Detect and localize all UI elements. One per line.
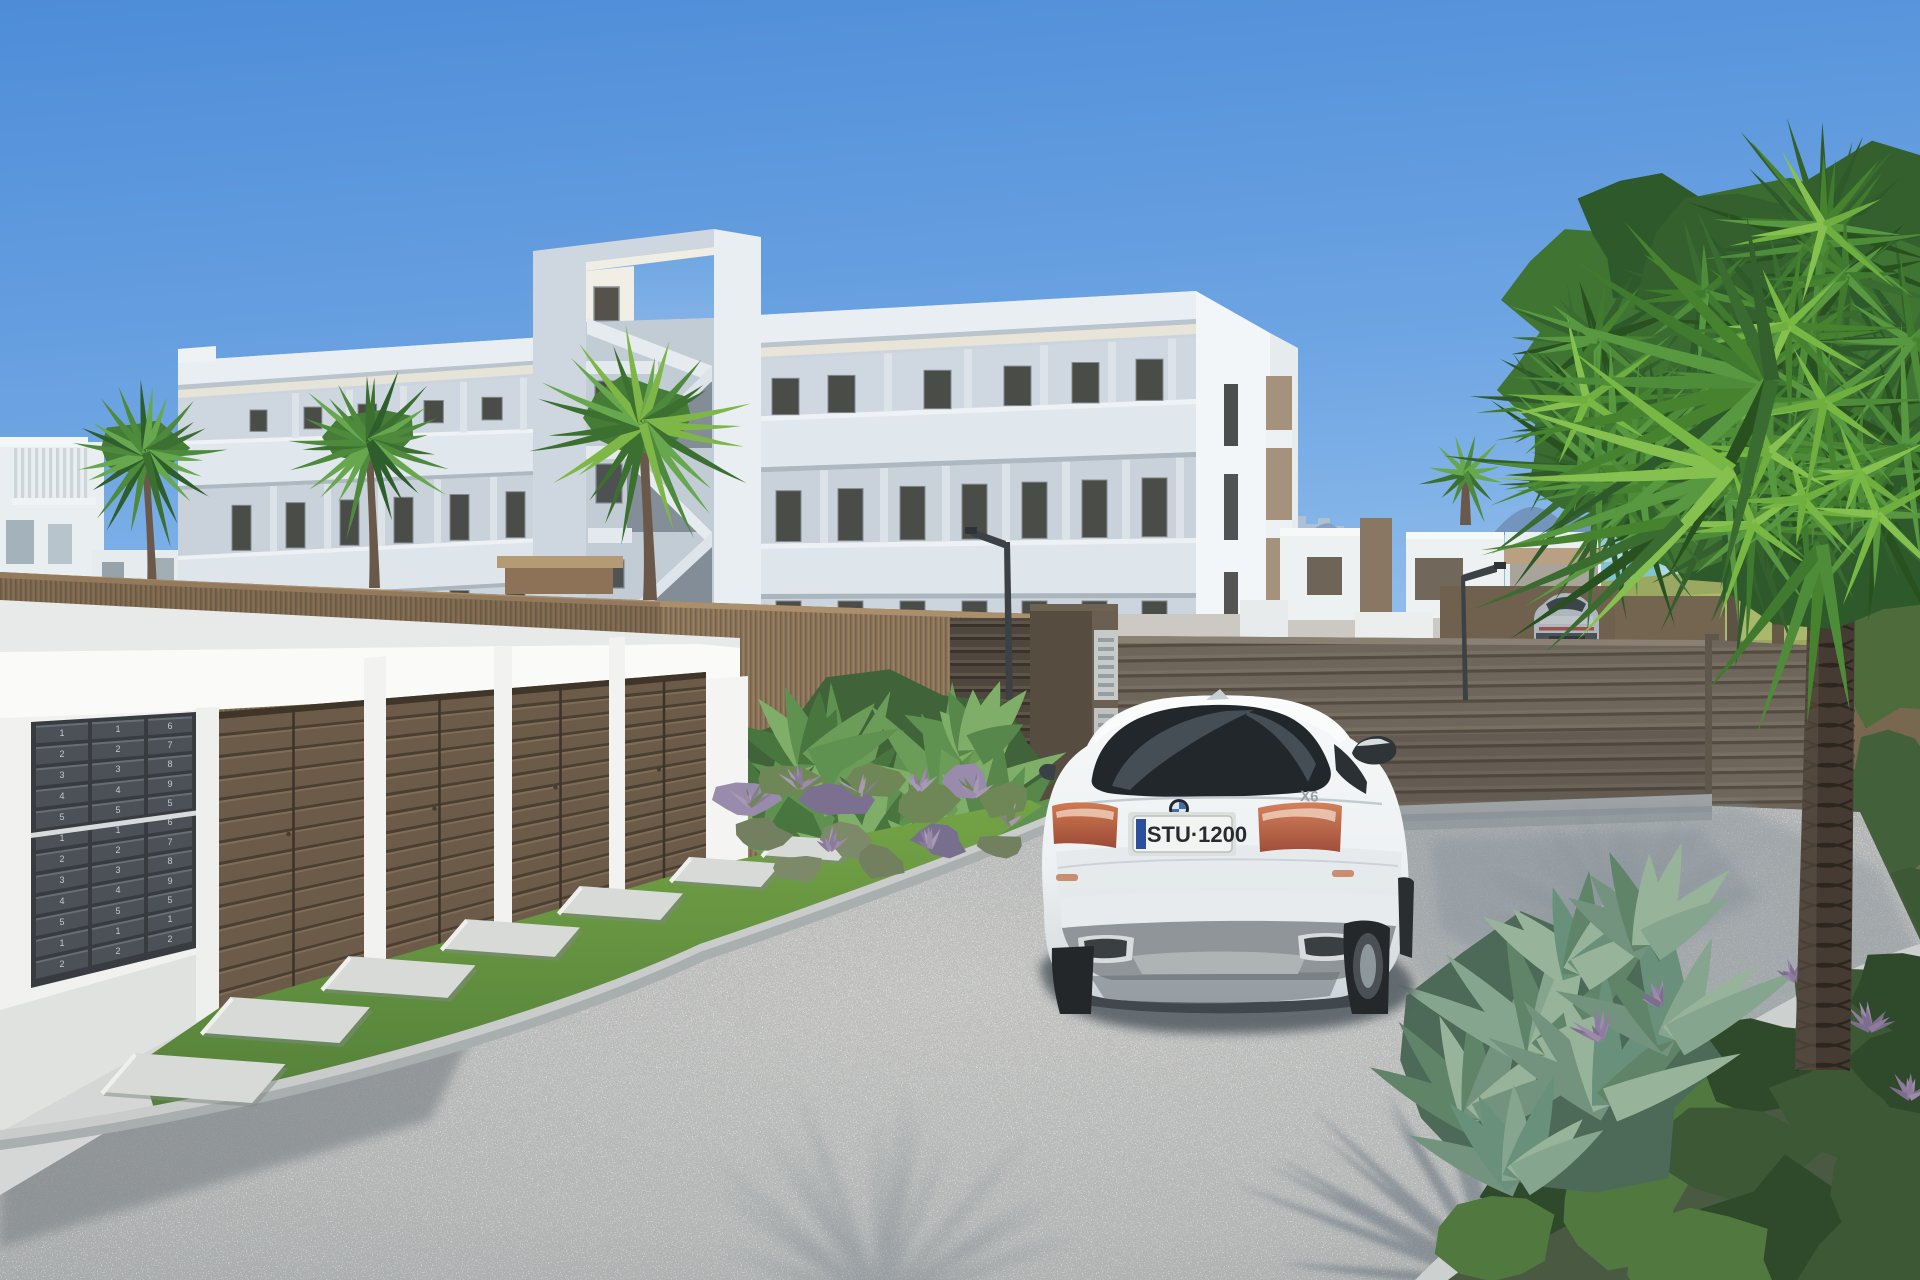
- svg-text:1: 1: [115, 926, 120, 936]
- svg-text:4: 4: [59, 896, 64, 906]
- svg-text:2: 2: [115, 845, 120, 855]
- svg-text:9: 9: [167, 779, 172, 789]
- svg-text:2: 2: [59, 854, 64, 864]
- svg-text:7: 7: [167, 740, 172, 750]
- svg-text:1: 1: [115, 724, 120, 734]
- svg-text:5: 5: [59, 917, 64, 927]
- svg-text:4: 4: [59, 791, 64, 801]
- svg-text:2: 2: [115, 744, 120, 754]
- svg-text:2: 2: [167, 934, 172, 944]
- svg-text:1: 1: [59, 728, 64, 738]
- svg-text:1: 1: [115, 825, 120, 835]
- svg-text:2: 2: [59, 959, 64, 969]
- svg-text:5: 5: [59, 812, 64, 822]
- svg-text:3: 3: [115, 865, 120, 875]
- svg-text:STU·1200: STU·1200: [1147, 822, 1247, 847]
- svg-text:3: 3: [115, 764, 120, 774]
- svg-text:X6: X6: [1300, 788, 1319, 806]
- svg-text:2: 2: [59, 749, 64, 759]
- svg-text:1: 1: [167, 914, 172, 924]
- svg-text:6: 6: [167, 721, 172, 731]
- svg-text:8: 8: [167, 856, 172, 866]
- svg-text:5: 5: [115, 906, 120, 916]
- svg-text:2: 2: [115, 946, 120, 956]
- svg-text:1: 1: [59, 833, 64, 843]
- svg-text:4: 4: [115, 885, 120, 895]
- svg-text:8: 8: [167, 759, 172, 769]
- svg-text:5: 5: [167, 895, 172, 905]
- svg-text:9: 9: [167, 876, 172, 886]
- svg-text:1: 1: [59, 938, 64, 948]
- svg-text:5: 5: [115, 805, 120, 815]
- svg-text:5: 5: [167, 798, 172, 808]
- svg-text:7: 7: [167, 837, 172, 847]
- svg-text:3: 3: [59, 875, 64, 885]
- svg-text:4: 4: [115, 785, 120, 795]
- svg-text:3: 3: [59, 770, 64, 780]
